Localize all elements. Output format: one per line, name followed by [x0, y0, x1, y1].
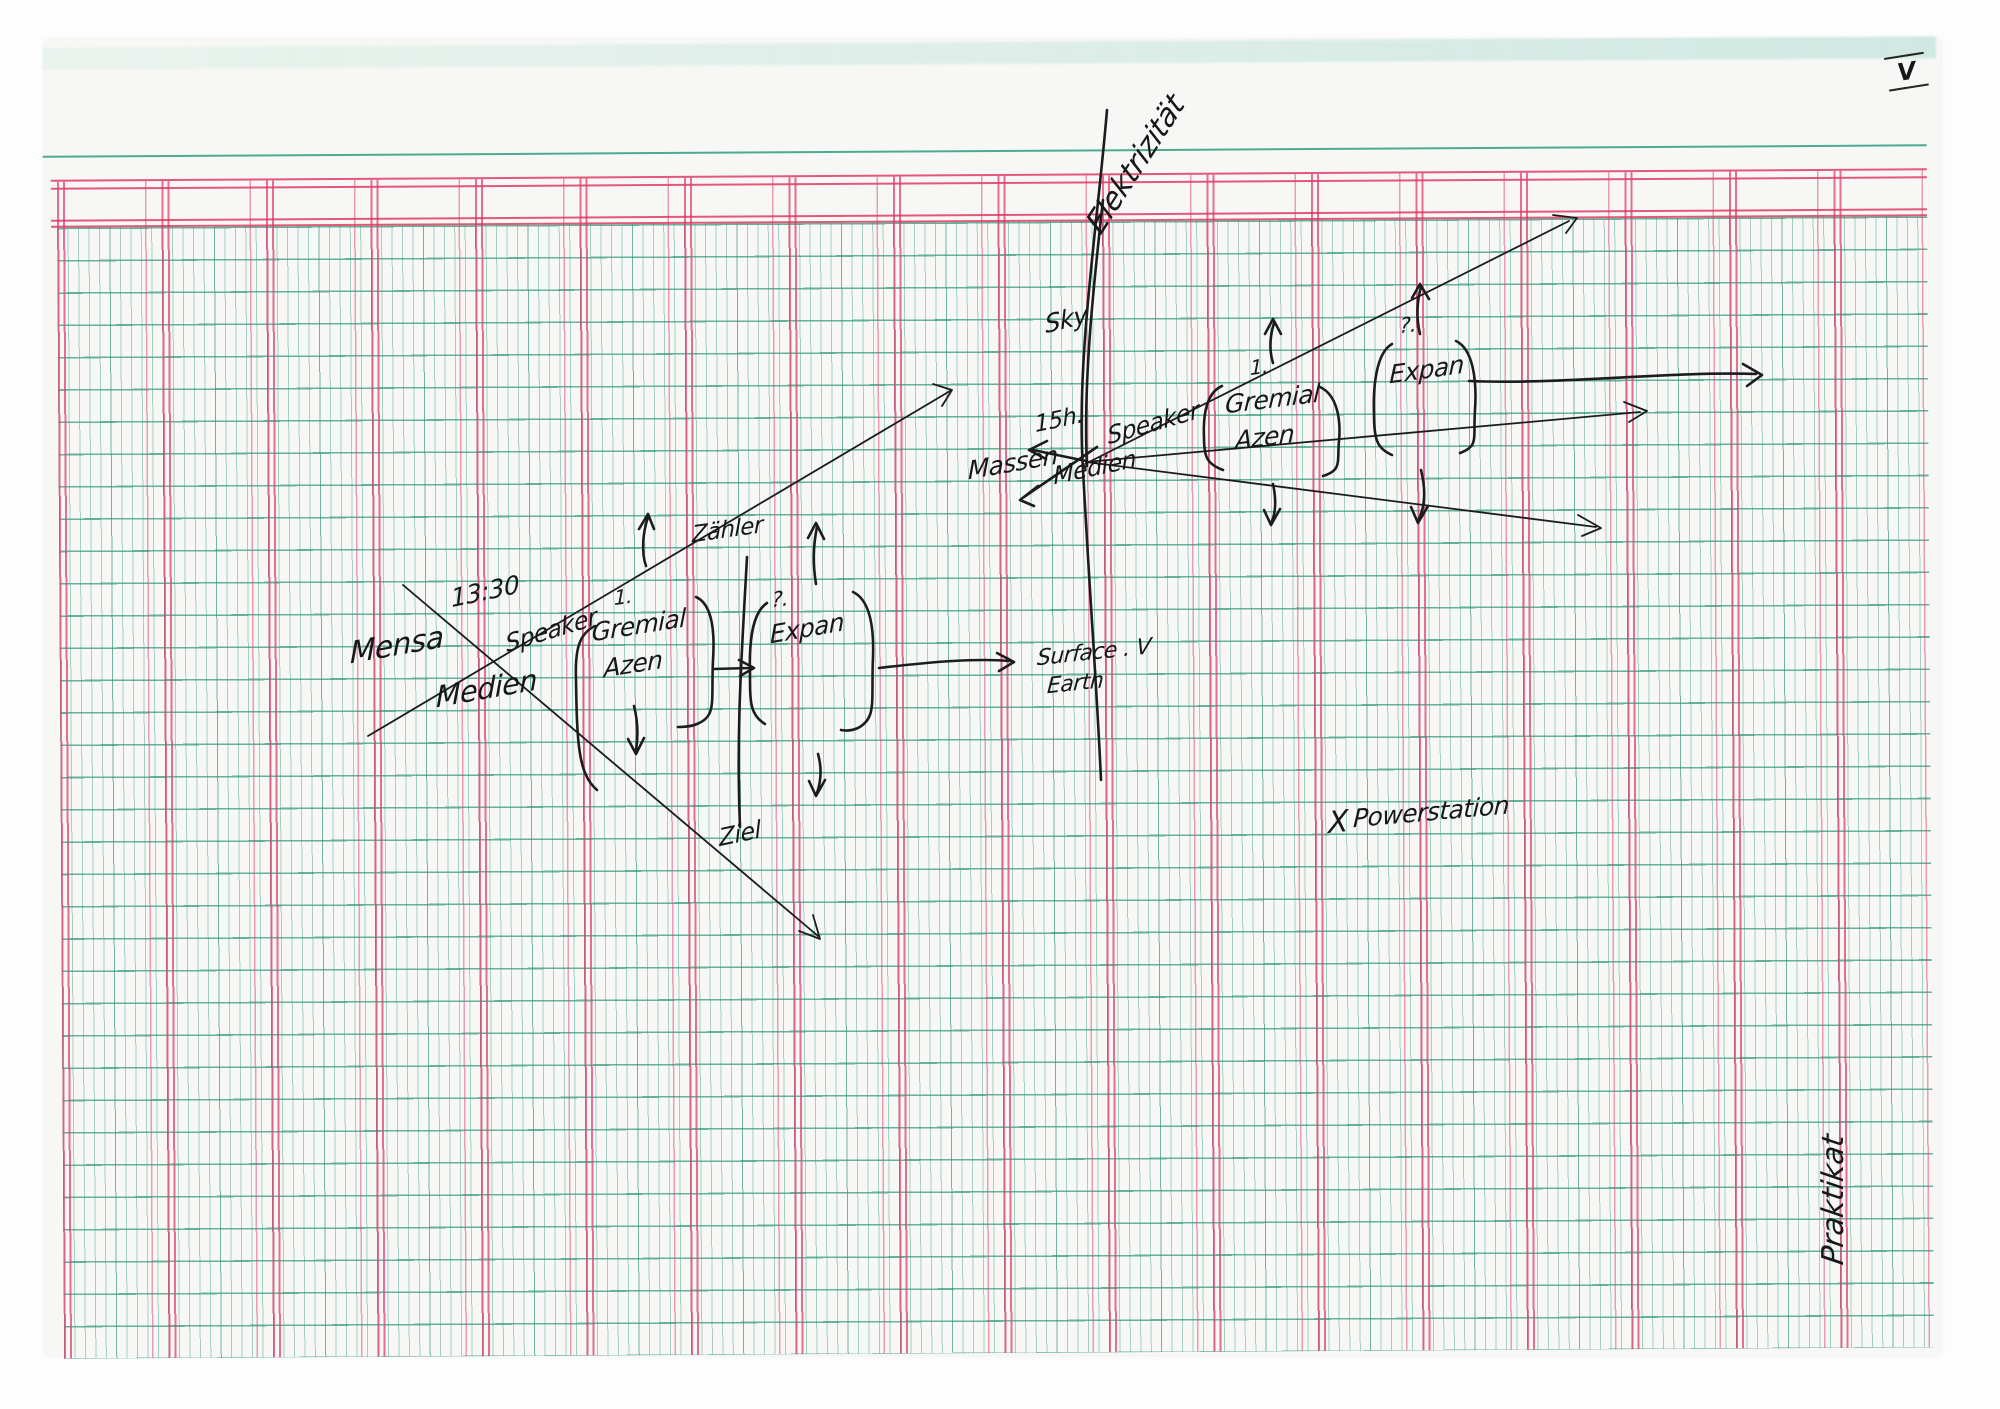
ledger-paper	[46, 40, 1940, 1355]
paper-top-edge-tint	[42, 36, 1936, 70]
label-praktikat: Praktikat	[1816, 1133, 1851, 1267]
label-question-marker-right: ?.	[1399, 312, 1417, 338]
label-step-marker-left: 1.	[614, 583, 632, 610]
paper-rulings	[42, 34, 1944, 1361]
label-powerstation-x-marker: X	[1328, 804, 1348, 841]
page-number-roman: V	[1884, 52, 1929, 92]
accounting-grid	[57, 216, 1934, 1358]
green-header-rule	[43, 144, 1927, 158]
scanned-page: Elektrizität 13:30 Mensa Medien Speaker …	[0, 0, 2000, 1409]
label-step-marker-right: 1.	[1250, 353, 1268, 380]
label-question-marker-left: ?.	[771, 586, 789, 612]
